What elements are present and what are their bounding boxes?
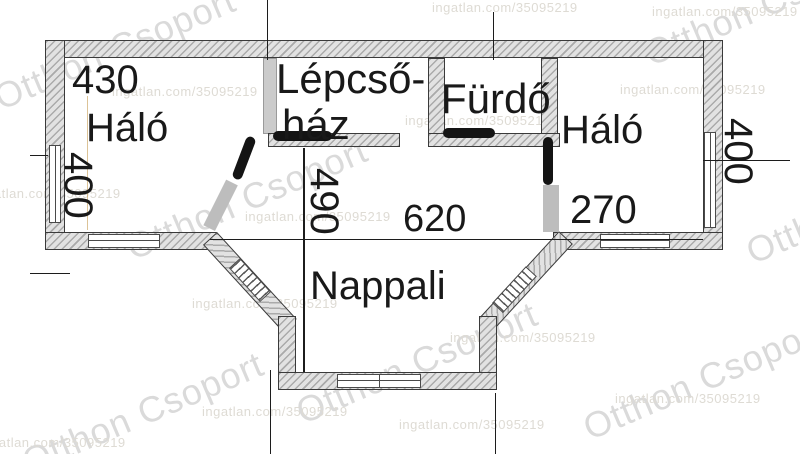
dimension-line-top-right (493, 12, 494, 60)
room-label-bathroom: Fürdő (441, 78, 551, 120)
watermark-listing: ingatlan.com/35095219 (432, 0, 578, 15)
window-bay-center (337, 374, 421, 388)
watermark-listing: ingatlan.com/35095219 (202, 404, 348, 419)
watermark-listing: ingatlan.com/35095219 (620, 82, 766, 97)
dim-label-620: 620 (403, 200, 466, 238)
watermark-brand: Otthon Csoport (577, 309, 800, 449)
dimension-line-left-stub-upper (30, 155, 48, 156)
dimension-line-top-left (267, 0, 268, 60)
door-mark-bathroom (443, 128, 495, 138)
grey-mark-bedroom-right (543, 185, 559, 232)
watermark-listing: ingatlan.com/35095219 (615, 391, 761, 406)
dimension-line-left-stub-lower (30, 273, 70, 274)
dim-label-400-right: 400 (718, 118, 758, 185)
window-bedroom-left (88, 234, 160, 248)
room-label-bedroom-right: Háló (561, 110, 643, 150)
door-mark-bedroom-right (543, 137, 553, 185)
wall-stairwell-left (263, 58, 277, 134)
watermark-listing: ingatlan.com/35095219 (652, 4, 798, 19)
floor-plan: Otthon Csoport Otthon Csoport Otthon Cso… (0, 0, 800, 454)
window-bedroom-right (600, 234, 670, 248)
dim-label-490: 490 (304, 168, 344, 235)
dim-label-430: 430 (72, 60, 139, 100)
room-label-bedroom-left: Háló (86, 108, 168, 148)
watermark-listing: ingatlan.com/35095219 (0, 435, 126, 450)
dim-label-270: 270 (570, 190, 637, 230)
dimension-line-bay-left (270, 370, 271, 454)
room-label-living-room: Nappali (310, 266, 446, 306)
window-wall-right (704, 132, 716, 228)
watermark-listing: ingatlan.com/35095219 (399, 417, 545, 432)
dimension-line-bay-right (495, 393, 496, 454)
room-label-stairwell-line2: ház (282, 104, 350, 146)
dim-label-400-left: 400 (58, 152, 98, 219)
room-label-stairwell-line1: Lépcső- (276, 58, 425, 100)
watermark-listing: ingatlan.com/35095219 (450, 330, 596, 345)
